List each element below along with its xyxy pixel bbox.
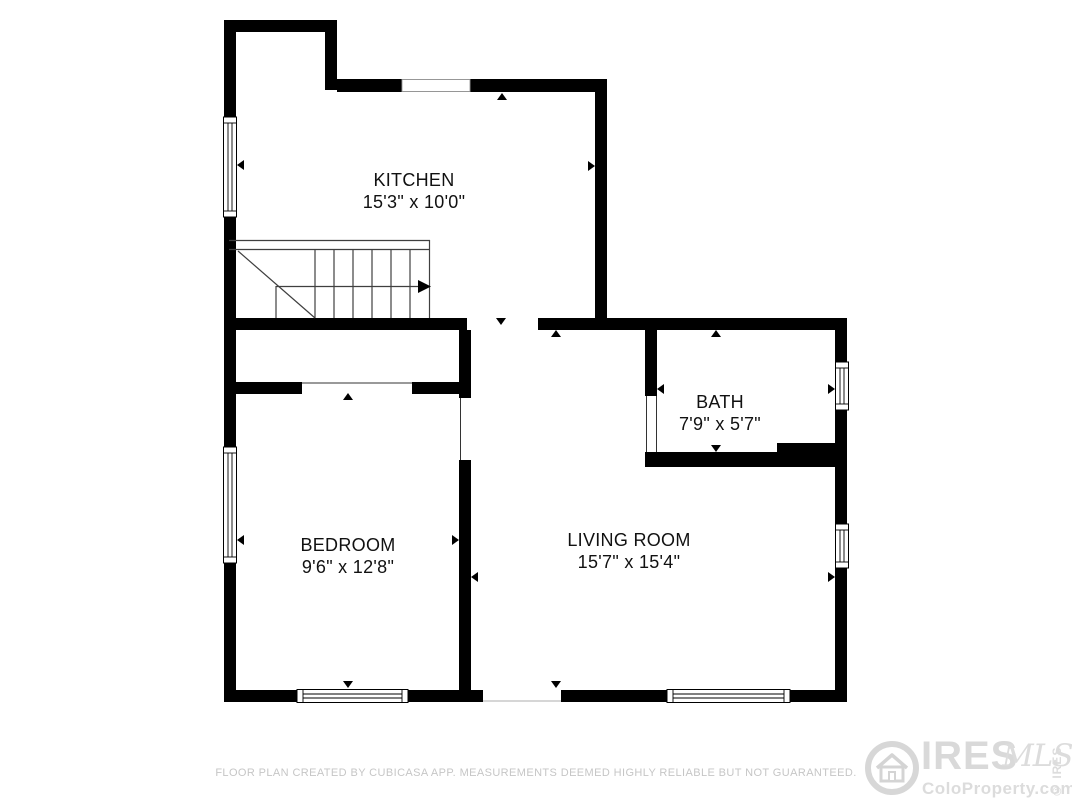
wall-segment — [459, 330, 471, 398]
floor-plan-drawing — [0, 0, 1072, 804]
room-label-bedroom: BEDROOM 9'6" x 12'8" — [300, 534, 395, 578]
room-name: BATH — [679, 391, 761, 413]
window — [667, 690, 790, 703]
measurement-marker-up — [343, 393, 353, 400]
measurement-marker-right — [452, 535, 459, 545]
room-dimensions: 9'6" x 12'8" — [300, 556, 395, 578]
window — [836, 524, 849, 568]
wall-segment — [595, 79, 607, 330]
wall-segment — [224, 690, 297, 702]
wall-segment — [790, 690, 847, 702]
wall-segment — [645, 452, 777, 467]
measurement-marker-up — [711, 330, 721, 337]
window — [402, 80, 470, 92]
window — [297, 690, 408, 703]
room-name: KITCHEN — [363, 169, 466, 191]
measurement-marker-down — [343, 681, 353, 688]
measurement-marker-right — [588, 161, 595, 171]
measurement-marker-up — [551, 330, 561, 337]
wall-segment — [645, 330, 657, 396]
wall-segment — [561, 690, 667, 702]
room-dimensions: 15'3" x 10'0" — [363, 191, 466, 213]
room-dimensions: 15'7" x 15'4" — [567, 551, 690, 573]
measurement-marker-up — [497, 93, 507, 100]
ires-watermark: IRES MLS ColoProperty.com © IRES — [864, 738, 1069, 802]
copyright-ires-text: © IRES — [1050, 740, 1064, 798]
wall-segment — [459, 460, 471, 702]
room-label-bath: BATH 7'9" x 5'7" — [679, 391, 761, 435]
room-name: LIVING ROOM — [567, 529, 690, 551]
measurement-marker-right — [828, 384, 835, 394]
measurement-marker-left — [471, 572, 478, 582]
room-label-kitchen: KITCHEN 15'3" x 10'0" — [363, 169, 466, 213]
window — [224, 117, 237, 217]
measurement-marker-down — [496, 318, 506, 325]
wall-segment — [224, 20, 337, 32]
wall-segment — [337, 79, 607, 92]
wall-segment — [538, 318, 847, 330]
wall-segment — [325, 20, 337, 90]
wall-segment — [408, 690, 483, 702]
measurement-marker-down — [551, 681, 561, 688]
measurement-marker-left — [237, 160, 244, 170]
measurement-marker-right — [828, 572, 835, 582]
room-label-living-room: LIVING ROOM 15'7" x 15'4" — [567, 529, 690, 573]
floor-plan-page: KITCHEN 15'3" x 10'0" BATH 7'9" x 5'7" B… — [0, 0, 1072, 804]
measurement-marker-left — [657, 384, 664, 394]
room-name: BEDROOM — [300, 534, 395, 556]
measurement-marker-down — [711, 445, 721, 452]
house-logo-icon — [864, 740, 920, 796]
window — [836, 362, 849, 410]
room-dimensions: 7'9" x 5'7" — [679, 413, 761, 435]
measurement-marker-left — [237, 535, 244, 545]
wall-segment — [224, 382, 302, 394]
window — [224, 447, 237, 563]
wall-segment — [224, 318, 467, 330]
